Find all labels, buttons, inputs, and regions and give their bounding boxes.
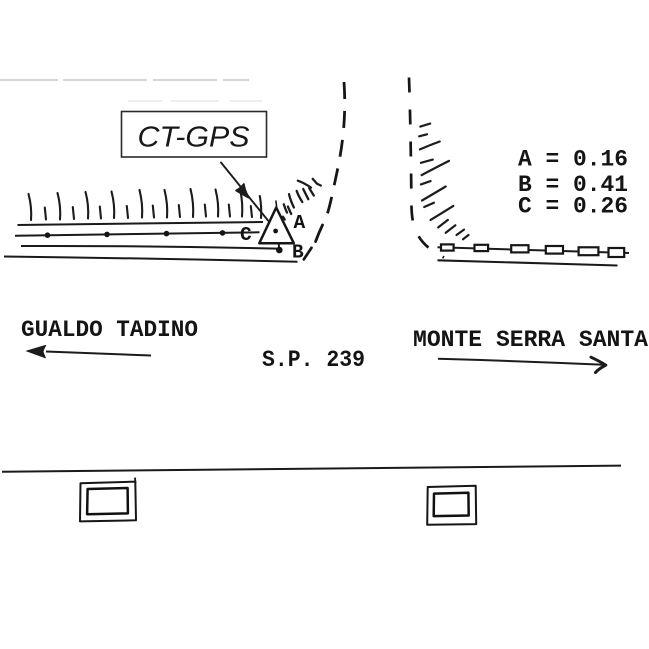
svg-text:A: A <box>294 212 306 234</box>
svg-text:MONTE SERRA SANTA: MONTE SERRA SANTA <box>413 327 648 353</box>
svg-text:C: C <box>240 224 252 246</box>
svg-text:CT-GPS: CT-GPS <box>138 122 251 154</box>
svg-text:B: B <box>292 241 304 263</box>
svg-text:GUALDO TADINO: GUALDO TADINO <box>21 317 198 343</box>
svg-text:A = 0.16: A = 0.16 <box>518 147 628 173</box>
svg-text:S.P. 239: S.P. 239 <box>262 347 365 373</box>
svg-text:C = 0.26: C = 0.26 <box>518 194 628 220</box>
